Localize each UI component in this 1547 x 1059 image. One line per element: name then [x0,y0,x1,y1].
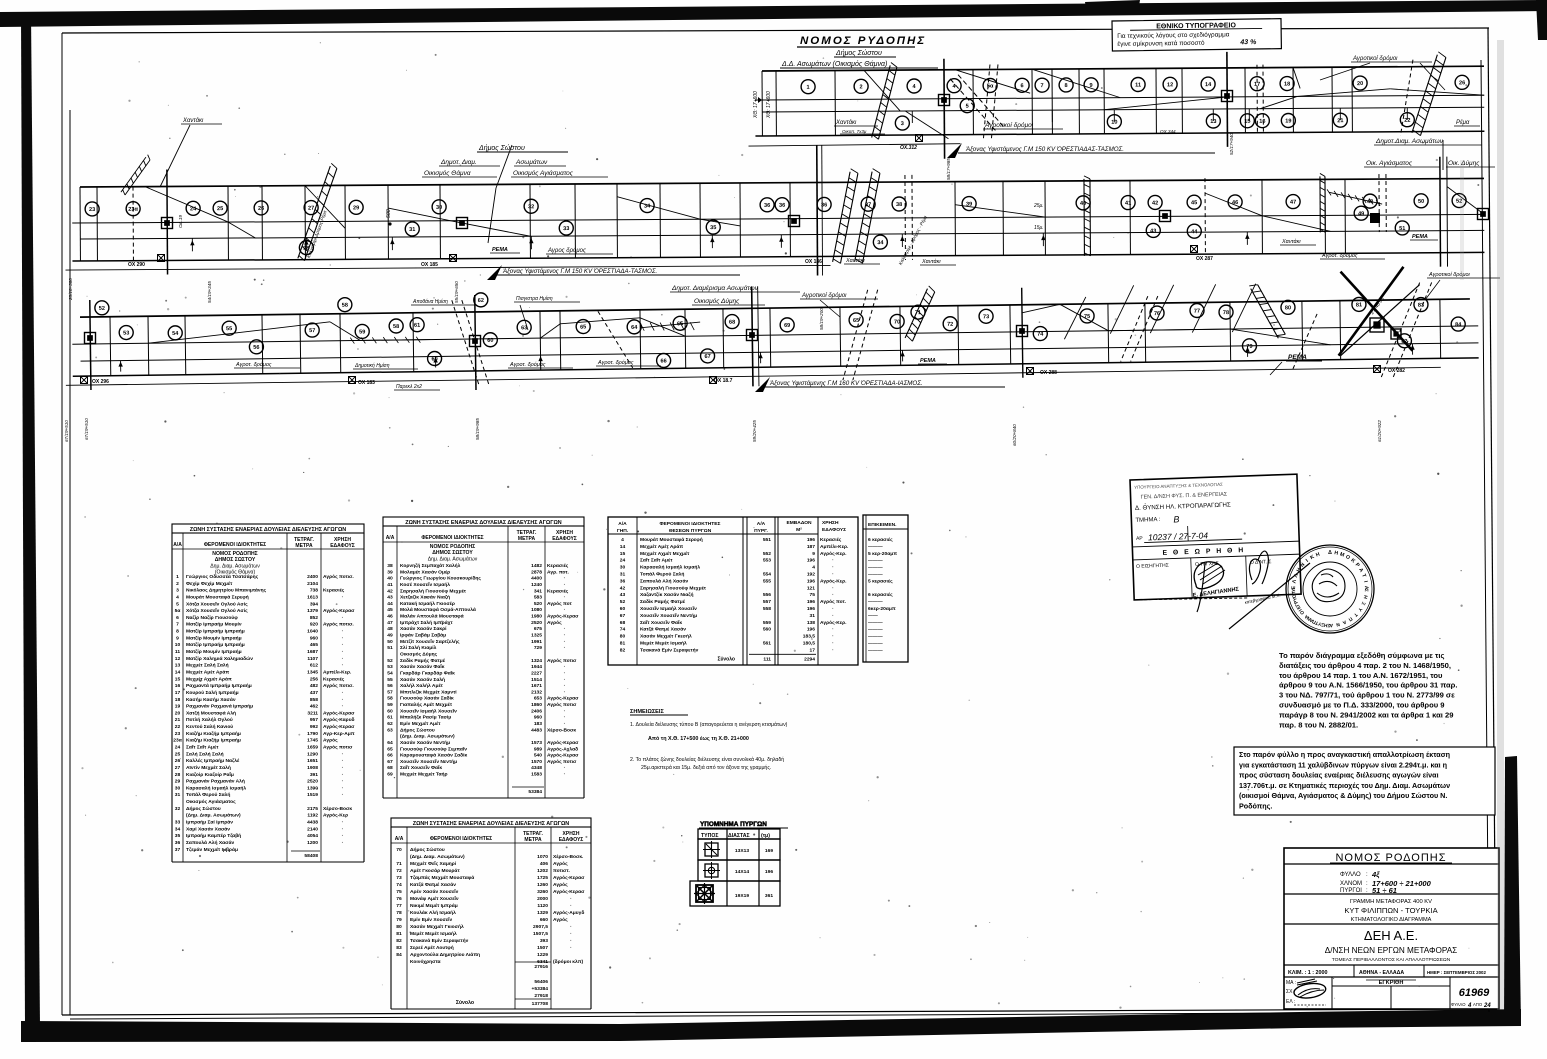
svg-text:560: 560 [763,627,771,633]
svg-text:60: 60 [387,708,393,714]
svg-text:έγινε σμίκρυνση κατά ποσοστό: έγινε σμίκρυνση κατά ποσοστό [1117,39,1205,48]
svg-text:ΑΠΟ: ΑΠΟ [1473,1002,1483,1007]
svg-text:44: 44 [387,601,393,607]
svg-text:6 κερασιές: 6 κερασιές [868,592,893,598]
svg-text:(τμ): (τμ) [761,833,770,839]
svg-text:13: 13 [1210,119,1216,125]
svg-text:Δήμος Σώστου: Δήμος Σώστου [410,847,445,853]
svg-text:Γεώργιος Γεωργίου Κουσκουρίδης: Γεώργιος Γεωργίου Κουσκουρίδης [400,576,481,582]
svg-text:ΡΕΜΑ: ΡΕΜΑ [920,358,936,364]
svg-text:196: 196 [807,578,815,584]
svg-text:957: 957 [310,717,318,723]
svg-text:———: ——— [868,648,883,653]
svg-text:1. Δουλεία διέλευσης τύπου Β: 1. Δουλεία διέλευσης τύπου Β (απαγορεύετ… [630,721,788,728]
svg-text:Το παρόν διάγραμμα εξεδόθη: Το παρόν διάγραμμα εξεδόθη σύμφωνα με τι… [1279,651,1444,660]
svg-text:Σύνολο: Σύνολο [717,656,735,662]
svg-text:61/20+922: 61/20+922 [1377,420,1382,442]
svg-text:ΕΓΚΡΙΘΗ: ΕΓΚΡΙΘΗ [1379,980,1404,986]
svg-text:Μπαλήζκ Ρασίμ Τασίμ: Μπαλήζκ Ρασίμ Τασίμ [400,715,451,721]
svg-text:583: 583 [534,595,542,601]
svg-text:1687: 1687 [307,649,318,655]
svg-text:46: 46 [1232,200,1238,206]
svg-text:11: 11 [1135,83,1141,89]
svg-text:διατάξεις του άρθρου 4 παρ: διατάξεις του άρθρου 4 παρ. 2 του Ν. 146… [1279,661,1451,670]
svg-text:Εμίν Μεχμέτ Αμέτ: Εμίν Μεχμέτ Αμέτ [400,721,441,727]
svg-text:64: 64 [387,740,393,746]
svg-text:Χασάν Χασάν Σαλή: Χασάν Χασάν Σαλή [400,677,445,683]
svg-text:Αγρός ποτ: Αγρός ποτ [547,601,572,607]
svg-text:Αγρός ποτισ: Αγρός ποτισ [547,702,577,708]
svg-text:9: 9 [812,551,815,557]
svg-text:137708: 137708 [532,1001,549,1007]
svg-text:31: 31 [810,613,816,619]
svg-text:16: 16 [175,683,181,689]
svg-text:Ο ΕΙΣΗΓΗΤΗΣ: Ο ΕΙΣΗΓΗΤΗΣ [1136,563,1169,570]
svg-text:ΧΡΗΣΗ: ΧΡΗΣΗ [822,520,839,526]
svg-text:17: 17 [810,647,816,653]
svg-text:ΖΩΝΗ ΣΥΣΤΑΣΗΣ ΕΝΑΕΡΙΑΣ ΔΟΥΛΕΙΑ: ΖΩΝΗ ΣΥΣΤΑΣΗΣ ΕΝΑΕΡΙΑΣ ΔΟΥΛΕΙΑΣ ΔΙΕΛΕΥΣΗ… [190,527,347,533]
svg-text:465: 465 [310,642,318,648]
svg-text:5 κερ-20αμπ: 5 κερ-20αμπ [868,551,897,557]
svg-text:50: 50 [1418,199,1424,205]
svg-text:Δημοτ.Διαμ. Ασωμάτων: Δημοτ.Διαμ. Ασωμάτων [1375,137,1444,145]
svg-text:852: 852 [310,615,318,621]
svg-text:Κεντού Σαλή Κανιού: Κεντού Σαλή Κανιού [186,724,233,730]
svg-text:79: 79 [1246,344,1252,350]
svg-text:ΧΘ: 17+600: ΧΘ: 17+600 [766,91,772,119]
svg-text:80: 80 [620,634,626,640]
svg-text:Μουράτ Μουσταφά Σερεφή: Μουράτ Μουσταφά Σερεφή [186,594,249,600]
svg-text:Κουλάκ Αλή Ισμαήλ: Κουλάκ Αλή Ισμαήλ [410,910,456,916]
svg-text:24: 24 [1483,1003,1491,1009]
svg-text:Χαντάκι: Χαντάκι [835,120,857,126]
svg-text:32: 32 [528,204,534,210]
svg-text:Μεμέτ Μεμέτ Ισμαήλ: Μεμέτ Μεμέτ Ισμαήλ [410,931,457,937]
svg-text:ΕΔΑΦΟΥΣ: ΕΔΑΦΟΥΣ [330,543,355,549]
svg-text:4438: 4438 [307,820,318,826]
svg-text:83: 83 [1418,303,1424,309]
svg-text:Αμέτ Γκοσάρ Μουράτ: Αμέτ Γκοσάρ Μουράτ [410,868,460,874]
svg-text:23α: 23α [173,738,181,744]
svg-text:68: 68 [387,765,393,771]
svg-text:1980: 1980 [531,614,542,620]
svg-text:6: 6 [176,615,179,621]
svg-text:1192: 1192 [307,813,318,819]
svg-text:Δημοτ. Διαμέρισμα Ασωμάτων: Δημοτ. Διαμέρισμα Ασωμάτων [671,284,759,292]
svg-text:60: 60 [620,606,626,612]
svg-text:27: 27 [308,206,314,212]
svg-text:45: 45 [1191,200,1197,206]
svg-text:554: 554 [763,572,771,578]
svg-text:Τσακανά Εμίν Σεραφετήν: Τσακανά Εμίν Σεραφετήν [410,938,469,944]
svg-text:1240: 1240 [531,582,542,588]
svg-text:196: 196 [807,537,815,543]
svg-text:Μεχμέτ Αμέτ Αράπ: Μεχμέτ Αμέτ Αράπ [640,544,683,550]
svg-text:Κιαζήμ Κιαζήμ Ιμπραήμ: Κιαζήμ Κιαζήμ Ιμπραήμ [186,738,241,744]
svg-text:558: 558 [763,606,771,612]
svg-text:66: 66 [387,753,393,759]
svg-text:Χασάν Χασάν Σακρί: Χασάν Χασάν Σακρί [400,626,447,632]
svg-text:Αγρός: Αγρός [323,738,338,744]
svg-text:ΝΟΜΟΣ ΡΥΔΟΠΗΣ: ΝΟΜΟΣ ΡΥΔΟΠΗΣ [800,35,926,47]
svg-text:53384: 53384 [528,789,542,795]
svg-text:Χαζαντζίκ Χασάν Νιαζή: Χαζαντζίκ Χασάν Νιαζή [640,592,693,598]
svg-text:Δήμος Σώστου: Δήμος Σώστου [186,806,221,812]
svg-text:520: 520 [534,601,542,607]
svg-text:67: 67 [704,354,710,360]
svg-text:391: 391 [310,772,318,778]
svg-text:Αγρός ποτισ: Αγρός ποτισ [323,745,353,751]
svg-text:Χαντάκι: Χαντάκι [845,258,865,264]
svg-text:36: 36 [821,202,827,208]
svg-text:1229: 1229 [537,952,548,958]
svg-text:26: 26 [175,758,181,764]
svg-text:Αγροτικοί δρόμοι: Αγροτικοί δρόμοι [984,121,1034,129]
svg-text:83: 83 [396,945,402,951]
svg-text:Νικιμέ Μεμέτ Ιμπράμ: Νικιμέ Μεμέτ Ιμπράμ [410,903,458,909]
svg-text:58408: 58408 [304,853,318,859]
svg-text:Οικοπ. 7x3μ: Οικοπ. 7x3μ [842,129,867,134]
svg-text:Μπιτλιζίκ Μεχμέτ Χαμντί: Μπιτλιζίκ Μεχμέτ Χαμντί [400,689,457,695]
svg-text:(Δημ. Διαμ. Ασωμάτων): (Δημ. Διαμ. Ασωμάτων) [410,854,465,860]
svg-text:32: 32 [175,806,181,812]
svg-text:17: 17 [175,690,181,696]
svg-text:Φεχίμ Φεχίμ Μεχμέτ: Φεχίμ Φεχίμ Μεχμέτ [186,581,233,587]
svg-text:Σαλή Σαλή Σαλή: Σαλή Σαλή Σαλή [186,751,224,757]
svg-text:παρ. 8 του Ν. 2882/01.: παρ. 8 του Ν. 2882/01. [1279,720,1358,729]
svg-text:Σερεέ Αμέτ Λουτφή: Σερεέ Αμέτ Λουτφή [410,945,454,951]
svg-text:31: 31 [409,227,415,233]
svg-text:341: 341 [534,588,542,594]
svg-text:ΖΩΝΗ ΣΥΣΤΑΣΗΣ ΕΝΑΕΡΙΑΣ ΔΟΥΛΕΙΑ: ΖΩΝΗ ΣΥΣΤΑΣΗΣ ΕΝΑΕΡΙΑΣ ΔΟΥΛΕΙΑΣ ΔΙΕΛΕΥΣΗ… [405,520,562,526]
svg-text:1329: 1329 [537,910,548,916]
svg-text:Ματζίρ Ιμπραήμ Μουμίν: Ματζίρ Ιμπραήμ Μουμίν [186,622,242,628]
svg-text:Χουσεΐν Χουσεΐν Νεντήμ: Χουσεΐν Χουσεΐν Νεντήμ [640,613,697,619]
svg-text:Χέρσο-Βοσκ.: Χέρσο-Βοσκ. [553,854,584,860]
svg-text:60: 60 [487,338,493,344]
svg-text:ΟΧ.312: ΟΧ.312 [900,145,917,151]
svg-text:Ραχμαντά Ιμπραήμ Ιμπραήμ: Ραχμαντά Ιμπραήμ Ιμπραήμ [186,683,252,689]
svg-text:1514: 1514 [531,677,542,683]
svg-text:27916: 27916 [534,964,548,970]
svg-text:Αρέν Χασάν Χουσεΐν: Αρέν Χασάν Χουσεΐν [410,889,459,895]
svg-text:180,5: 180,5 [803,641,816,647]
svg-text:Χαντάκι: Χαντάκι [182,118,204,124]
svg-text:Χασάν Χασάν Φαΐκ: Χασάν Χασάν Φαΐκ [400,664,445,670]
svg-text:27918: 27918 [534,993,548,999]
svg-text:Χασάν Μεχμέτ Γκεσήλ: Χασάν Μεχμέτ Γκεσήλ [640,634,692,640]
svg-text:72: 72 [396,868,402,874]
svg-text:ΓΡΑΜΜΗ ΜΕΤΑΦΟΡΑΣ 400 KV: ΓΡΑΜΜΗ ΜΕΤΑΦΟΡΑΣ 400 KV [1350,899,1432,905]
svg-text:27: 27 [175,765,181,771]
svg-text:74: 74 [1037,332,1044,338]
svg-text:69: 69 [387,772,393,778]
svg-text:ΝΟΜΟΣ ΡΟΔΟΠΗΣ: ΝΟΜΟΣ ΡΟΔΟΠΗΣ [1335,852,1446,864]
svg-text:Ποτλή Χαλήλ Ογλού: Ποτλή Χαλήλ Ογλού [186,717,233,723]
svg-text:992: 992 [310,724,318,730]
svg-text:1908: 1908 [307,765,318,771]
svg-text:4348: 4348 [531,765,542,771]
svg-text:1202: 1202 [537,868,548,874]
svg-text:8: 8 [1065,83,1068,89]
svg-text:Σαδίκ Ραμής Φατμέ: Σαδίκ Ραμής Φατμέ [400,658,446,664]
svg-text:Χασάν Χασάν Νεντήμ: Χασάν Χασάν Νεντήμ [400,740,450,746]
svg-text:17: 17 [1254,82,1260,88]
svg-text:71: 71 [915,310,921,316]
svg-text:Ιμπράχτ Σαλή Ιμπράχτ: Ιμπράχτ Σαλή Ιμπράχτ [400,620,453,626]
svg-text:62: 62 [478,298,484,304]
svg-text:———: ——— [868,545,883,550]
svg-text:ΟΧ 288: ΟΧ 288 [1040,370,1057,376]
svg-text:10: 10 [175,642,181,648]
svg-text:άρθρου 9 του Α.Ν. 1566/1950,: άρθρου 9 του Α.Ν. 1566/1950, του άρθρου … [1279,681,1457,690]
svg-text:5α: 5α [175,608,181,614]
svg-text:48: 48 [1367,199,1373,205]
svg-text:462: 462 [310,704,318,710]
svg-text:Μεμέτ Μεμέτ Ισμαήλ: Μεμέτ Μεμέτ Ισμαήλ [640,641,687,647]
svg-text:45: 45 [387,607,393,613]
svg-text:84: 84 [1455,322,1462,328]
svg-text:2406: 2406 [531,708,542,714]
svg-text:ΣΧ: ΣΧ [1286,989,1293,995]
svg-text:729: 729 [534,645,542,651]
svg-text:2175: 2175 [307,806,318,812]
svg-text:Χαμί Χασάν Χασάν: Χαμί Χασάν Χασάν [186,826,230,832]
svg-text:82: 82 [1401,339,1407,345]
svg-text:4400: 4400 [531,576,542,582]
svg-text:Χέρσο-Βοσκ: Χέρσο-Βοσκ [547,727,576,733]
svg-text:42: 42 [1152,200,1158,206]
svg-text:3211: 3211 [307,710,318,716]
svg-text:Δήμος Σώστου: Δήμος Σώστου [400,727,435,733]
svg-text:196: 196 [765,869,773,875]
svg-text:Αγρός-Κερασ: Αγρός-Κερασ [323,710,355,716]
svg-text:ΑΡ: ΑΡ [1136,536,1144,542]
svg-text:3 του ΝΔ. 797/71, τού άρθρου: 3 του ΝΔ. 797/71, τού άρθρου 1 του Ν. 27… [1279,691,1455,700]
svg-text:1651: 1651 [307,758,318,764]
svg-text:2907,5: 2907,5 [533,924,548,930]
svg-text:60: 60 [431,356,437,362]
svg-text:23: 23 [175,731,181,737]
svg-text:ΟΧ 185: ΟΧ 185 [421,262,438,268]
svg-text:5: 5 [966,104,969,110]
svg-text:552: 552 [763,551,771,557]
svg-text:960: 960 [534,715,542,721]
svg-text:35: 35 [175,833,181,839]
svg-text:82: 82 [396,938,402,944]
svg-text:ΟΧ 290: ΟΧ 290 [128,262,145,268]
svg-text:21: 21 [1337,118,1343,124]
svg-text:Ασωμάτων: Ασωμάτων [515,158,548,166]
svg-text:44: 44 [1191,229,1198,235]
svg-text:ΘΕΣΕΩΝ ΠΥΡΓΩΝ: ΘΕΣΕΩΝ ΠΥΡΓΩΝ [669,528,712,534]
svg-text:1613: 1613 [307,594,318,600]
svg-text:1944: 1944 [531,664,542,670]
svg-text:1040: 1040 [307,629,318,635]
svg-text:———: ——— [868,635,883,640]
svg-text:Κατζά Φατμέ Χασάν: Κατζά Φατμέ Χασάν [640,627,686,633]
svg-text:3260: 3260 [537,889,548,895]
svg-text:1725: 1725 [537,875,548,881]
svg-text:59/20+425: 59/20+425 [752,420,757,442]
svg-text:59: 59 [387,702,393,708]
svg-text:ΤΜΗΜΑ :: ΤΜΗΜΑ : [1135,517,1161,524]
svg-text:12: 12 [175,656,181,662]
svg-text:26: 26 [258,206,264,212]
svg-text:———: ——— [868,621,883,626]
svg-text:80: 80 [1285,305,1291,311]
svg-text:ΕΔΑΦΟΥΣ: ΕΔΑΦΟΥΣ [552,536,577,542]
svg-text:ΕΛ :: ΕΛ : [1286,999,1295,1005]
svg-text:4: 4 [1467,1003,1472,1009]
svg-text:58: 58 [342,303,348,309]
svg-text:1345: 1345 [307,669,318,675]
svg-text:58: 58 [387,696,393,702]
svg-text:ΡΕΜΑ: ΡΕΜΑ [1412,234,1428,240]
svg-text:ΕΜΒΑΔΟΝ: ΕΜΒΑΔΟΝ [786,520,812,526]
svg-text:Χότζα Χουσεΐν Ογλού Ασίς: Χότζα Χουσεΐν Ογλού Ασίς [186,601,248,607]
svg-text:ΜΕΤΡΑ: ΜΕΤΡΑ [295,543,313,549]
svg-text:ΓΗΠ.: ΓΗΠ. [617,528,629,534]
svg-text:Δημοτ. Διαμ.: Δημοτ. Διαμ. [440,159,477,166]
svg-text:Κερασιές: Κερασιές [547,563,569,569]
svg-text:75: 75 [1084,314,1090,320]
svg-text:———: ——— [868,559,883,564]
svg-text:169: 169 [765,848,773,854]
svg-text:Μολά Μουσταφά Οσμά-Απτουλά: Μολά Μουσταφά Οσμά-Απτουλά [400,607,476,613]
svg-text:80: 80 [396,924,402,930]
svg-text:Παρεκλ 2x2: Παρεκλ 2x2 [396,384,422,390]
svg-text:25: 25 [217,206,223,212]
svg-text:7: 7 [1041,83,1044,89]
svg-text:196: 196 [807,558,815,564]
svg-text:ΧΛΝΟΜ: ΧΛΝΟΜ [1340,881,1362,887]
svg-text:78: 78 [1223,310,1229,316]
svg-text:4483: 4483 [531,727,542,733]
svg-text:1570: 1570 [531,759,542,765]
svg-text:39: 39 [966,202,972,208]
svg-text:18: 18 [1284,82,1290,88]
svg-text:Αϊντίν Μεχμέτ Σαλή: Αϊντίν Μεχμέτ Σαλή [186,765,231,771]
svg-text:Τζεμάν Μεχμέτ Ιμβράμ: Τζεμάν Μεχμέτ Ιμβράμ [186,847,238,853]
svg-text:Στο παρόν φύλλο η προς αναγκασ: Στο παρόν φύλλο η προς αναγκαστική απαλλ… [1239,750,1450,759]
svg-text:Οικισμός Θάμνα: Οικισμός Θάμνα [424,169,471,177]
svg-text:Σ: Σ [1363,589,1369,592]
svg-text:Κορνηζή Σεμπαχάτ Χαλήλ: Κορνηζή Σεμπαχάτ Χαλήλ [400,563,461,569]
svg-text:19X19: 19X19 [735,893,749,899]
svg-text:Μ²: Μ² [796,527,802,533]
svg-text:Αγρός ποτισ: Αγρός ποτισ [547,658,577,664]
svg-text:Άξονας Υφιστάμενης Γ.Μ 160 KV: Άξονας Υφιστάμενης Γ.Μ 160 KV ΌΡΕΣΤΙΑΔΑ-… [769,380,923,387]
svg-text:ΟΧ 287: ΟΧ 287 [1196,256,1213,262]
svg-text:84: 84 [396,952,402,958]
svg-text:5 κερασιές: 5 κερασιές [868,578,893,584]
svg-text:ΕΔΑΦΟΥΣ: ΕΔΑΦΟΥΣ [559,837,584,843]
svg-text:4054: 4054 [307,833,318,839]
svg-text:36: 36 [764,203,770,209]
svg-text:34: 34 [877,240,884,246]
svg-text:Αγροτικοί δρόμοι: Αγροτικοί δρόμοι [801,292,847,299]
svg-text:196: 196 [807,627,815,633]
svg-text:ΟΧ.344: ΟΧ.344 [1160,129,1176,134]
svg-text:Κιαζήμ Κιαζήμ Ιμπραήμ: Κιαζήμ Κιαζήμ Ιμπραήμ [186,731,241,737]
svg-text:24: 24 [175,745,181,751]
svg-text:Αμπέλι-Κερ.: Αμπέλι-Κερ. [323,669,352,675]
svg-text:Σαρησαλή Γιουσούφ Μεχμέτ: Σαρησαλή Γιουσούφ Μεχμέτ [400,588,467,594]
svg-text:43 %: 43 % [1239,39,1257,46]
svg-text:για εγκατάσταση 11 χαλύβδινων: για εγκατάσταση 11 χαλύβδινων πύργων είν… [1239,760,1447,769]
svg-text:ΧΘ: 17+600: ΧΘ: 17+600 [753,91,759,119]
svg-text:Αγρός ποτ.: Αγρός ποτ. [820,599,847,605]
svg-text:39: 39 [387,569,393,575]
svg-text:1482: 1482 [531,563,542,569]
svg-text:540: 540 [534,753,542,759]
svg-text:68: 68 [620,620,626,626]
svg-text:Αγρός-Κερασ: Αγρός-Κερασ [547,753,579,759]
svg-text:ΔΙΑΣΤΑΣ: ΔΙΑΣΤΑΣ [728,833,750,839]
svg-text:65: 65 [387,746,393,752]
svg-text:Κιαζοίρ Κιαζοίρ Ραΐμ: Κιαζοίρ Κιαζοίρ Ραΐμ [186,772,234,778]
svg-text:Σαΐτ Σαΐτ Αμέτ: Σαΐτ Σαΐτ Αμέτ [186,745,219,751]
svg-text:19: 19 [1285,119,1291,125]
svg-text:14X14: 14X14 [735,869,749,875]
svg-text:72: 72 [947,322,953,328]
svg-text:Σαπουλά Αλή Χασάν: Σαπουλά Αλή Χασάν [640,578,688,584]
svg-text:52: 52 [387,658,393,664]
svg-text:36: 36 [175,840,181,846]
svg-text:33: 33 [175,820,181,826]
svg-text:Α/Α: Α/Α [395,836,404,842]
svg-text:54: 54 [387,670,393,676]
svg-text:551: 551 [763,537,771,543]
svg-text:(Δημ. Διαμ. Ασωμάτων): (Δημ. Διαμ. Ασωμάτων) [186,813,241,819]
svg-text:Αγρός-Κερασ: Αγρός-Κερασ [547,614,579,620]
svg-text:660: 660 [540,917,548,923]
svg-text:28: 28 [303,246,309,252]
svg-text:Κουρού Σαλή Ιμπραήμ: Κουρού Σαλή Ιμπραήμ [186,690,239,696]
svg-text:15: 15 [620,551,626,557]
svg-text:58/19+985: 58/19+985 [475,418,480,440]
svg-text:49: 49 [1358,211,1364,217]
svg-text:Οικ. Αγιάσματος: Οικ. Αγιάσματος [1366,159,1413,167]
svg-text:67/19+510: 67/19+510 [84,418,89,440]
svg-text:56406: 56406 [534,979,548,985]
svg-text:Αγρός-Κερ.: Αγρός-Κερ. [820,578,847,584]
svg-text:ΟΧ 183: ΟΧ 183 [358,380,375,386]
svg-text:Ροδόπης.: Ροδόπης. [1239,802,1272,811]
svg-text:Κερασιές: Κερασιές [547,588,569,594]
svg-text:Αγρός-Καρυδ: Αγρός-Καρυδ [323,717,355,723]
svg-text:11: 11 [175,649,180,655]
svg-text:81: 81 [1356,302,1362,308]
svg-text:Χατζή Μουσταφά Αλή: Χατζή Μουσταφά Αλή [186,710,236,716]
svg-text:ΡΕΜΑ: ΡΕΜΑ [1288,354,1307,361]
svg-text:81: 81 [396,931,402,937]
svg-text:Α/Α: Α/Α [757,521,766,527]
svg-text:ΚΛΙΜ. : 1 : 2000: ΚΛΙΜ. : 1 : 2000 [1288,970,1328,976]
svg-text:1671: 1671 [531,683,542,689]
svg-text:(δρόμοι κλπ): (δρόμοι κλπ) [553,959,583,965]
svg-text:73: 73 [983,314,989,320]
svg-text:Ματζίρ Μουμίν Ιμπραήμ: Ματζίρ Μουμίν Ιμπραήμ [186,649,242,655]
svg-text:67: 67 [387,759,393,765]
svg-text:67/19+510: 67/19+510 [64,420,69,442]
svg-text:393: 393 [540,938,548,944]
svg-text:1200: 1200 [307,840,318,846]
svg-text:653: 653 [534,696,542,702]
svg-text:ΦΥΛΛΟ: ΦΥΛΛΟ [1451,1002,1466,1007]
svg-text:Μουράτ Μουσταφά Σερεφή: Μουράτ Μουσταφά Σερεφή [640,537,703,543]
